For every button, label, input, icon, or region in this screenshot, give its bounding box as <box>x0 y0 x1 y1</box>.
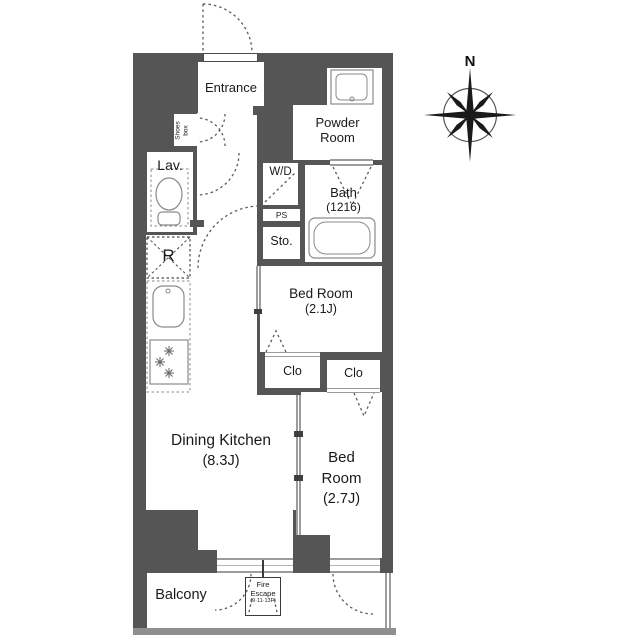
lavatory-door-swing <box>197 153 239 195</box>
closet-1-door-fold <box>266 331 286 352</box>
label-bedroom-2: Bed Room (2.7J) <box>301 447 382 509</box>
label-pipe-space: PS <box>263 210 300 220</box>
label-refrigerator: R <box>147 246 190 266</box>
label-closet-1: Clo <box>265 364 320 379</box>
label-dining-kitchen: Dining Kitchen (8.3J) <box>141 431 301 471</box>
label-powder-room: Powder Room <box>293 115 382 146</box>
label-bedroom-1: Bed Room (2.1J) <box>260 286 382 317</box>
closet-2-door-fold <box>354 393 374 416</box>
label-closet-2: Clo <box>327 366 380 381</box>
compass-north-label: N <box>465 53 476 70</box>
floor-plan: N Entrance Shoes box Powder Room Bath (1… <box>0 0 640 640</box>
compass-star <box>424 68 516 162</box>
label-entrance: Entrance <box>198 80 264 95</box>
label-shoes-box: Shoes box <box>174 114 197 146</box>
label-bath: Bath (1216) <box>305 185 382 214</box>
label-storage: Sto. <box>263 234 300 249</box>
balcony-door-swing-right <box>333 574 373 614</box>
label-balcony: Balcony <box>141 587 221 604</box>
compass-rose: N <box>418 42 526 172</box>
label-fire-escape: Fire Escape (9·11·13F) <box>246 581 280 605</box>
hall-door-swing <box>198 206 260 268</box>
entrance-door-swing <box>203 4 252 53</box>
label-washer-dryer: W/D <box>263 166 298 180</box>
door-swing-layer <box>0 0 640 640</box>
label-lavatory: Lav. <box>147 157 193 174</box>
